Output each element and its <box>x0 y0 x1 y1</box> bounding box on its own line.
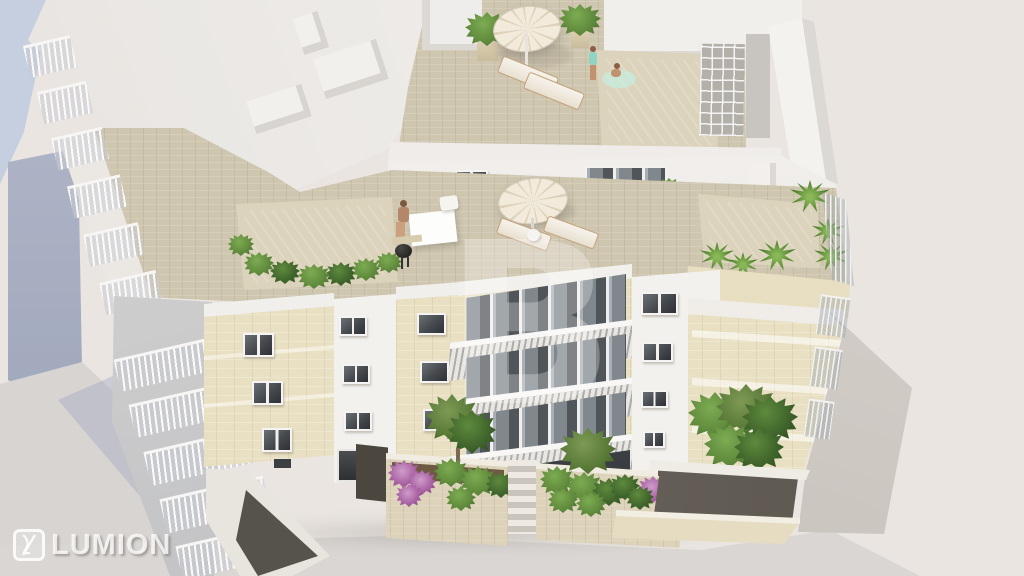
entrance-steps <box>508 460 536 534</box>
lumion-logo-icon <box>12 528 46 562</box>
brand-watermark: LUMION <box>12 528 171 562</box>
person-legs <box>590 65 596 80</box>
window <box>642 342 673 362</box>
bbq-dome <box>395 244 412 258</box>
person-torso <box>589 52 597 65</box>
bbq-leg <box>407 257 409 267</box>
window <box>344 411 372 431</box>
window <box>417 313 446 335</box>
person-standing <box>586 46 600 82</box>
window <box>243 333 274 357</box>
brand-watermark-text: LUMION <box>51 529 171 562</box>
center-watermark-letter: B <box>444 214 616 439</box>
window <box>641 292 678 315</box>
garage-opening <box>356 444 388 502</box>
swimmer-body <box>611 69 621 77</box>
side-balcony-railing <box>815 294 850 338</box>
pool-deck-grid <box>699 44 745 137</box>
window <box>339 316 367 336</box>
swimmer-head <box>614 63 620 69</box>
window <box>252 381 283 405</box>
side-balcony-railing <box>809 346 842 390</box>
window <box>643 431 665 448</box>
person-seated <box>394 198 424 244</box>
bbq-leg <box>401 257 403 269</box>
vent-opening <box>274 459 291 468</box>
person-torso <box>398 207 409 222</box>
window <box>262 428 292 452</box>
window <box>342 364 370 384</box>
person-head <box>400 200 407 207</box>
upper-back-wall <box>604 0 712 56</box>
bbq-grill <box>392 242 416 270</box>
side-balcony-railing <box>803 398 834 439</box>
upper-grey-strip <box>746 34 770 138</box>
window <box>641 390 668 408</box>
architectural-render-scene: B LUMION <box>0 0 1024 576</box>
